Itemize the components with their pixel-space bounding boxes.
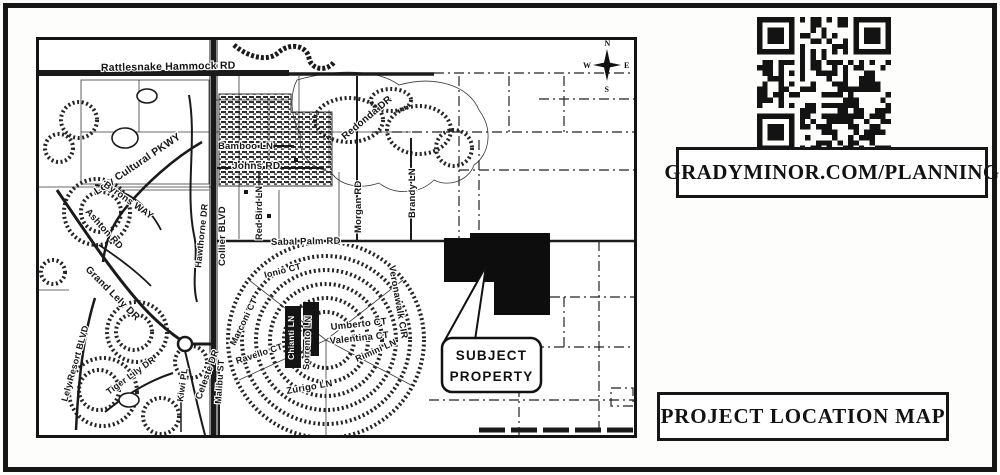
road-label: Tiger Lily DR [104, 354, 157, 396]
compass-s: S [605, 85, 610, 94]
road-label: Red Bird LN [254, 186, 264, 240]
website-caption: GRADYMINOR.COM/PLANNING [664, 160, 999, 185]
road-label: Chianti LN [286, 316, 296, 361]
road-label: Ionio CT [263, 261, 302, 280]
road-label: Collier BLVD [217, 206, 228, 266]
compass-e: E [624, 61, 629, 70]
road-label: Sabal Palm RD [271, 236, 341, 248]
map-title-box: PROJECT LOCATION MAP [657, 392, 949, 441]
compass-w: W [583, 61, 591, 70]
website-caption-box: GRADYMINOR.COM/PLANNING [676, 147, 988, 198]
callout-line1: SUBJECT [456, 348, 527, 363]
road-label: Sorrento LN [301, 316, 313, 371]
road-label: Kiwi PL [175, 367, 190, 402]
road-label: Hawthorne DR [193, 203, 210, 268]
road-label: Morgan RD [353, 181, 364, 233]
callout-line2: PROPERTY [450, 369, 534, 384]
road-label: Veronawalk CIR [386, 265, 410, 340]
qr-code [757, 17, 891, 151]
location-map-image: N E S W Rattlesnake Hammock RDBamboo LNJ… [39, 40, 634, 435]
scanned-sheet: N E S W Rattlesnake Hammock RDBamboo LNJ… [0, 0, 1000, 475]
compass-rose-icon: N E S W [583, 40, 629, 94]
location-map: N E S W Rattlesnake Hammock RDBamboo LNJ… [36, 37, 637, 438]
road-label: Rattlesnake Hammock RD [101, 60, 236, 74]
subject-property-shape [444, 233, 550, 315]
road-label: Brandy LN [407, 168, 418, 218]
road-label: Malibu ST [213, 359, 226, 404]
road-label: Bamboo LN [218, 141, 273, 152]
map-title: PROJECT LOCATION MAP [661, 404, 946, 429]
compass-n: N [605, 40, 611, 48]
road-label: Johns RD [232, 161, 280, 172]
qr-code-image [757, 17, 891, 151]
road-label: Lely Resort BLVD [59, 324, 90, 403]
